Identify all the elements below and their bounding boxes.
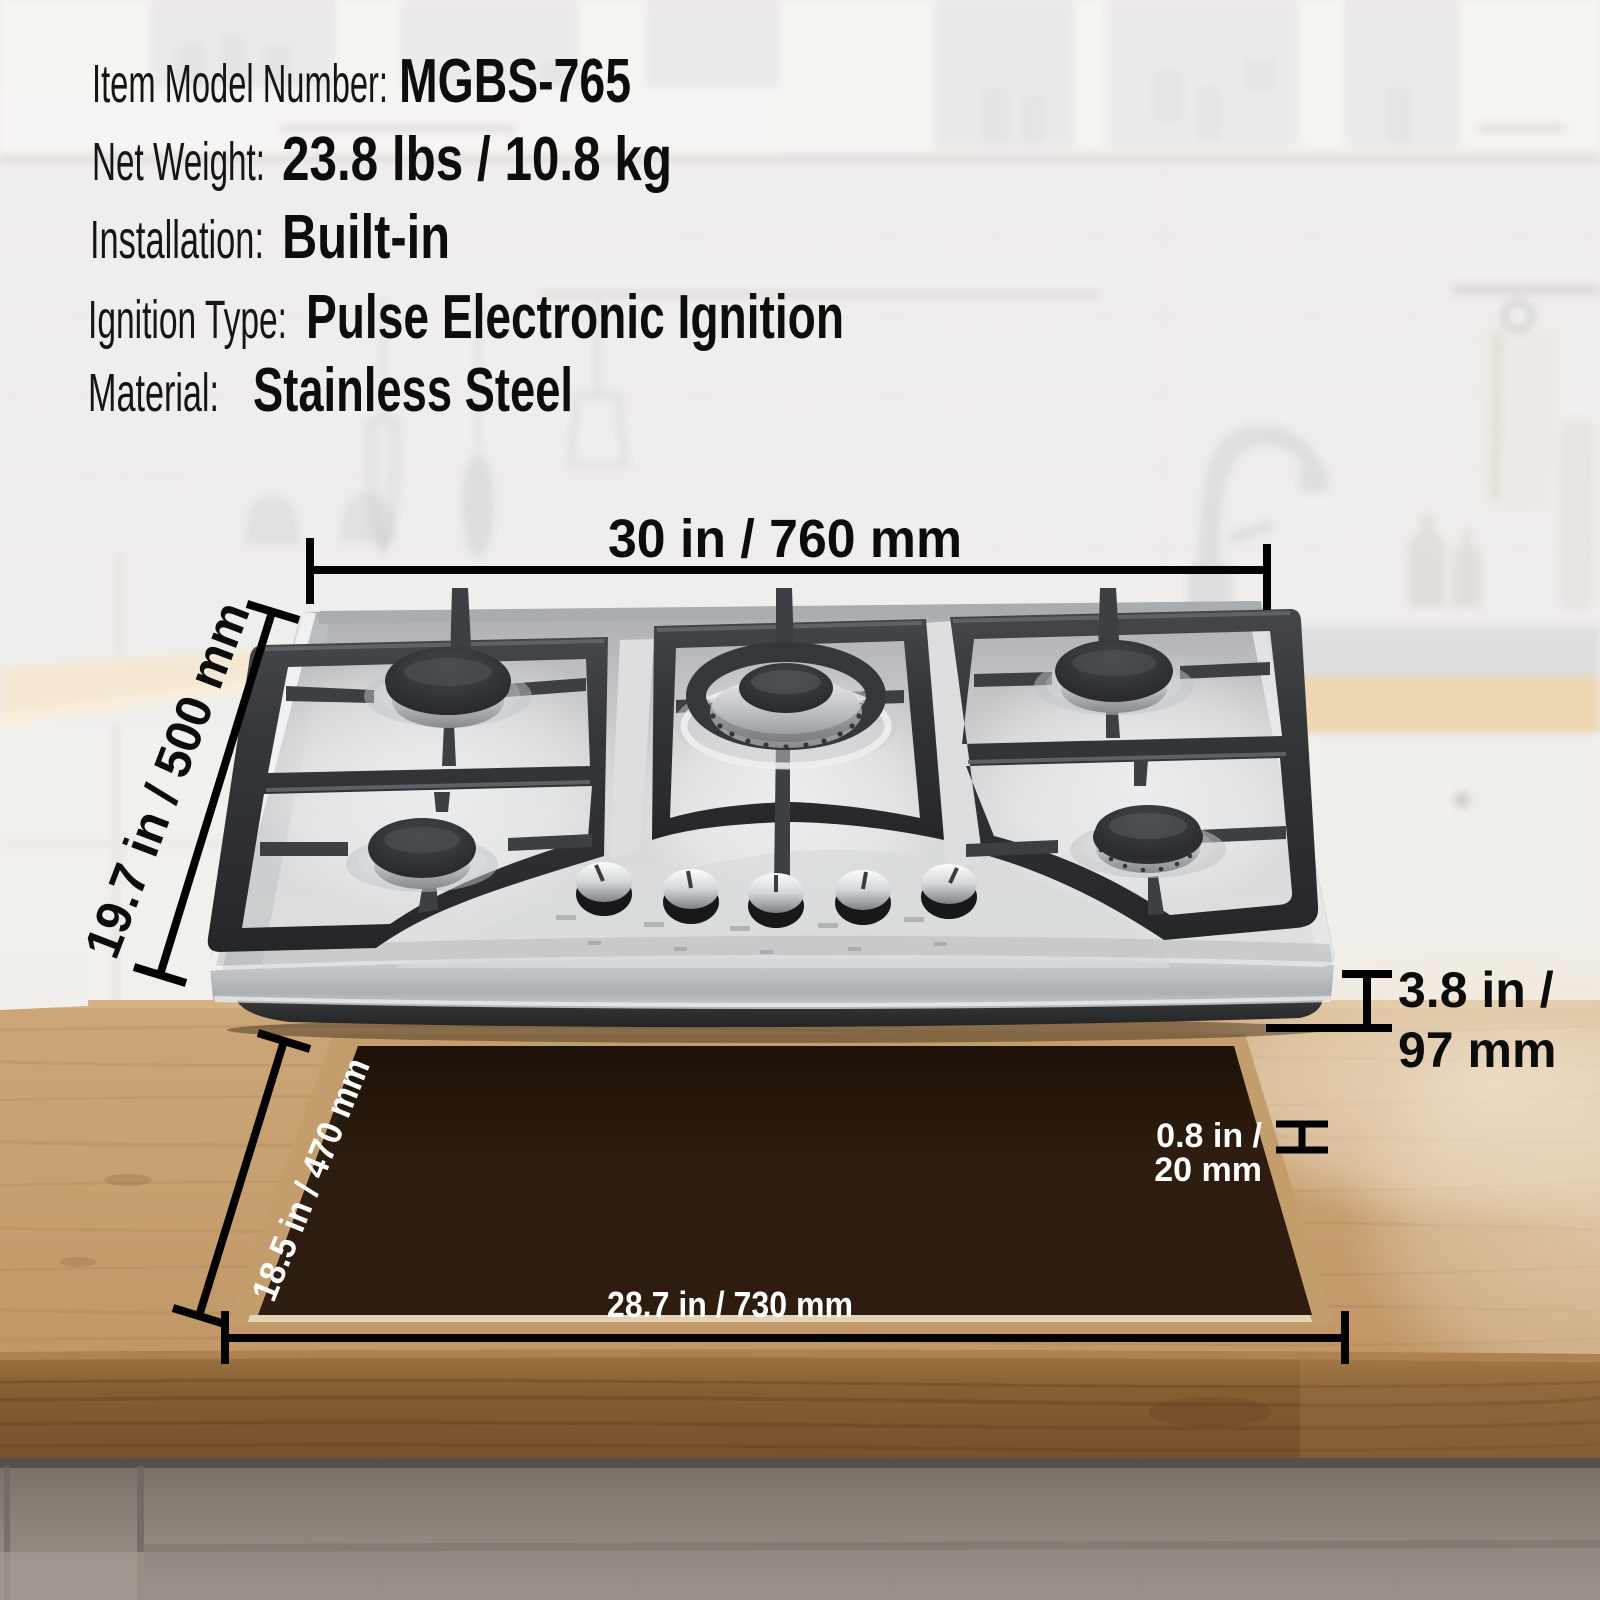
svg-text:Ignition Type:: Ignition Type: (88, 290, 287, 350)
svg-text:97 mm: 97 mm (1398, 1022, 1556, 1078)
svg-text:3.8 in /: 3.8 in / (1398, 962, 1554, 1018)
svg-text:Installation:: Installation: (90, 210, 264, 270)
svg-text:Stainless Steel: Stainless Steel (253, 356, 573, 425)
svg-text:Pulse Electronic Ignition: Pulse Electronic Ignition (306, 283, 844, 352)
svg-text:28.7 in / 730 mm: 28.7 in / 730 mm (607, 1284, 853, 1325)
svg-text:20 mm: 20 mm (1154, 1151, 1262, 1189)
svg-text:Net Weight:: Net Weight: (92, 132, 265, 192)
svg-text:Material:: Material: (88, 363, 219, 423)
svg-text:23.8 lbs / 10.8 kg: 23.8 lbs / 10.8 kg (282, 125, 672, 194)
svg-text:0.8 in /: 0.8 in / (1156, 1117, 1262, 1155)
svg-text:Built-in: Built-in (282, 203, 450, 272)
svg-text:MGBS-765: MGBS-765 (399, 47, 631, 116)
svg-text:Item Model Number:: Item Model Number: (92, 54, 388, 114)
svg-text:30 in / 760 mm: 30 in / 760 mm (608, 509, 962, 569)
